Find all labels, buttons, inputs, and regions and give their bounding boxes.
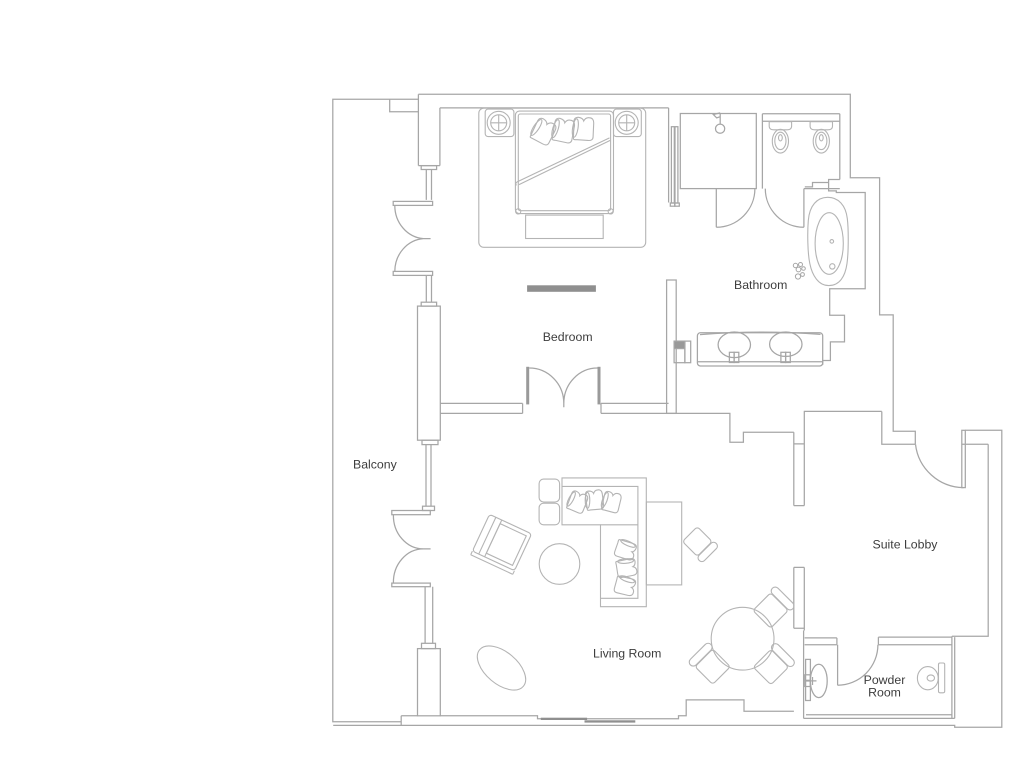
svg-text:Living Room: Living Room — [593, 647, 661, 661]
svg-text:Bedroom: Bedroom — [543, 330, 593, 344]
svg-text:Bathroom: Bathroom — [734, 278, 787, 292]
svg-text:Balcony: Balcony — [353, 457, 398, 471]
svg-text:Room: Room — [868, 685, 901, 699]
svg-text:Suite Lobby: Suite Lobby — [873, 538, 939, 552]
